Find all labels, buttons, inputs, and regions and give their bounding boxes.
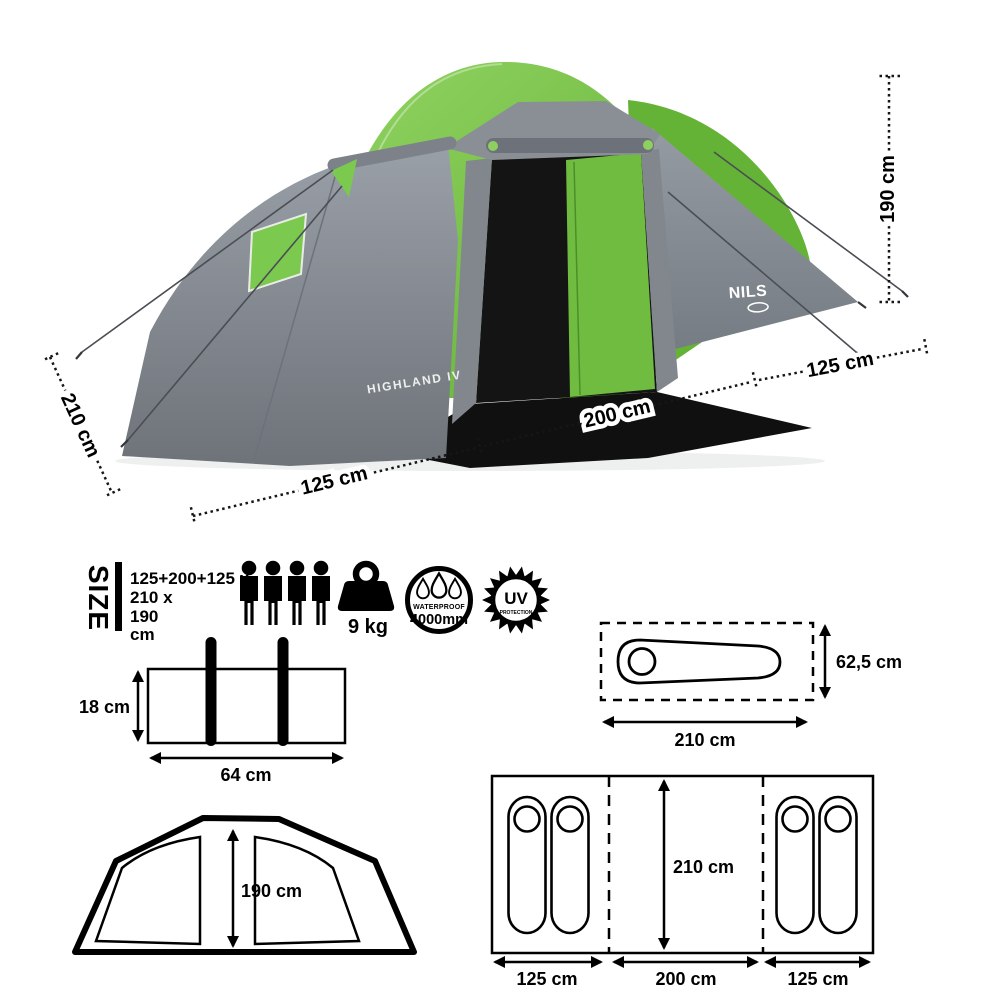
uv-badge: UV PROTECTION: [482, 567, 550, 634]
packed-bag-diagram: 18 cm 64 cm: [79, 637, 345, 785]
waterproof-badge: WATERPROOF 4000mm: [408, 569, 471, 632]
dim-depth-210: 210 cm: [42, 353, 120, 497]
person-icon: [312, 561, 330, 625]
sleeping-bag-icon: [618, 640, 780, 683]
dim-packed-height: 18 cm: [79, 672, 138, 740]
width-right-label: 125 cm: [805, 348, 876, 382]
floor-left-label: 125 cm: [516, 969, 577, 989]
sleeping-bag-icon: [820, 797, 857, 933]
dim-height-190: 190 cm: [877, 76, 900, 302]
packed-strap: [278, 637, 289, 746]
uv-sublabel: PROTECTION: [500, 610, 533, 616]
sleeping-bag-icon: [777, 797, 814, 933]
spec-line-1: 125+200+125 x: [130, 569, 250, 588]
front-view-diagram: 190 cm: [75, 818, 414, 952]
dim-floor-center: 200 cm: [614, 962, 757, 989]
spec-line-3: 190: [130, 607, 158, 626]
dim-bag-width: 62,5 cm: [825, 626, 902, 697]
waterproof-value: 4000mm: [410, 612, 468, 628]
person-icon: [264, 561, 282, 625]
dim-packed-width: 64 cm: [151, 758, 342, 785]
height-label: 190 cm: [877, 155, 899, 223]
packed-height-label: 18 cm: [79, 697, 130, 717]
person-icon: [288, 561, 306, 625]
dim-floor-right: 125 cm: [766, 962, 869, 989]
weight-label: 9 kg: [348, 616, 388, 638]
front-height-label: 190 cm: [241, 881, 302, 901]
sleeping-bag-icon: [552, 797, 589, 933]
spec-line-4: cm: [130, 625, 155, 644]
floor-depth-label: 210 cm: [673, 857, 734, 877]
size-divider: [115, 562, 122, 631]
dim-floor-left: 125 cm: [495, 962, 601, 989]
waterproof-label: WATERPROOF: [413, 604, 465, 611]
packed-width-label: 64 cm: [220, 765, 271, 785]
brand-logo-text: NILS: [728, 283, 768, 303]
floor-plan-diagram: 210 cm 125 cm 200 cm 125 cm: [492, 776, 873, 989]
capacity-icons: [240, 561, 330, 625]
packed-strap: [206, 637, 217, 746]
dim-bag-length: 210 cm: [604, 722, 806, 750]
bag-length-label: 210 cm: [674, 730, 735, 750]
dim-width-right-125: 125 cm: [759, 339, 928, 382]
spec-line-2: 210 x: [130, 588, 173, 607]
person-icon: [240, 561, 258, 625]
rolled-door-flap: [486, 138, 654, 153]
size-panel: SIZE 125+200+125 x 210 x 190 cm: [83, 561, 550, 644]
tent-product-infographic: HIGHLAND IV NILS 210 cm 190 cm 125 cm 20…: [0, 0, 1000, 1000]
size-title: SIZE: [83, 565, 114, 631]
sleeping-bag-icon: [509, 797, 546, 933]
weight-icon: [338, 564, 394, 611]
floor-center-label: 200 cm: [655, 969, 716, 989]
uv-label: UV: [504, 589, 528, 608]
tent-photo: HIGHLAND IV NILS: [76, 62, 908, 471]
sleeping-bag-diagram: 62,5 cm 210 cm: [601, 623, 902, 750]
floor-right-label: 125 cm: [787, 969, 848, 989]
depth-label: 210 cm: [56, 390, 104, 461]
bag-width-label: 62,5 cm: [836, 652, 902, 672]
tent-left-wing: [122, 143, 458, 466]
